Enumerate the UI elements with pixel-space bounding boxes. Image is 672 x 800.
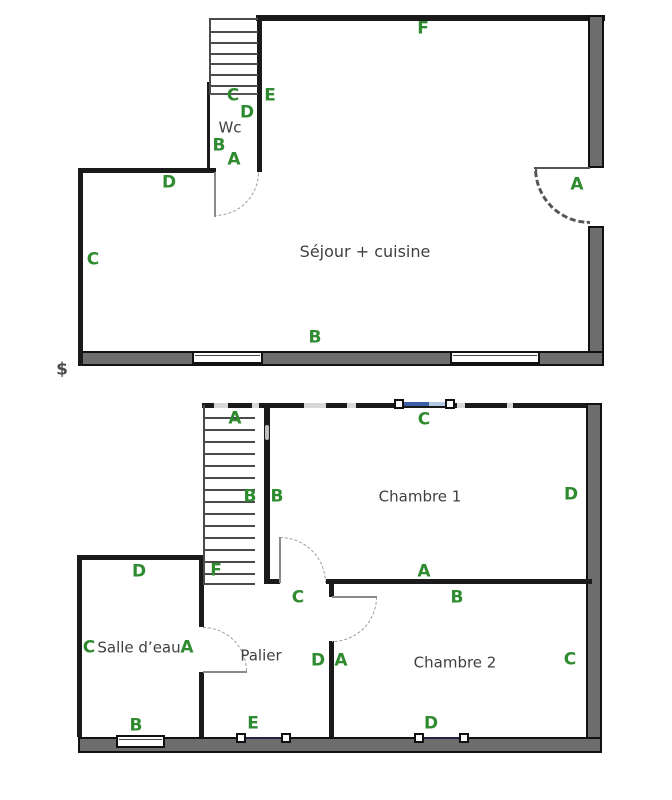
marker-b: B xyxy=(130,718,143,735)
stair-tread xyxy=(205,429,255,431)
roof-window-chambre2-end-square xyxy=(414,733,424,743)
chambre2-door-leaf xyxy=(332,596,377,598)
wall-salle-top-wall xyxy=(77,555,204,560)
chambre1-door-swing-arc xyxy=(280,537,326,583)
roof-window-top-end-square xyxy=(445,399,455,409)
wall-salle-right-wall-lower xyxy=(199,672,204,737)
roof-window-palier-end-square xyxy=(281,733,291,743)
stair-tread xyxy=(205,549,255,551)
wall-right-wall xyxy=(586,403,602,753)
marker-b: B xyxy=(271,489,284,506)
stair-tread xyxy=(205,513,255,515)
room-label-chambre-2: Chambre 2 xyxy=(414,656,497,671)
marker-a: A xyxy=(180,640,193,657)
window-glass-line xyxy=(119,739,162,740)
stair-tread xyxy=(205,525,255,527)
stair-tread xyxy=(205,477,255,479)
upper-floor-plan: ACBBDACBDFCADACBEDChambre 1Chambre 2Sall… xyxy=(0,0,672,800)
salle-deau-door-leaf xyxy=(203,671,247,673)
chambre1-door-leaf xyxy=(279,537,281,583)
marker-c: C xyxy=(564,652,576,669)
stair-tread xyxy=(205,453,255,455)
roof-window-palier-end-square xyxy=(236,733,246,743)
floorplan-canvas: FCEDBADACBWcSéjour + cuisine$ ACBBDACBDF… xyxy=(0,0,672,800)
salle-window-window xyxy=(116,735,165,748)
marker-a: A xyxy=(228,411,241,428)
wall-gap xyxy=(457,403,465,408)
marker-d: D xyxy=(132,564,146,581)
room-label-salle-deau: Salle d’eau xyxy=(97,641,180,656)
stair-tread xyxy=(205,537,255,539)
wall-gap xyxy=(347,403,356,408)
marker-b: B xyxy=(244,489,257,506)
marker-f: F xyxy=(210,563,222,580)
marker-d: D xyxy=(564,487,578,504)
room-label-palier: Palier xyxy=(240,649,281,664)
roof-window-chambre2-end-square xyxy=(459,733,469,743)
roof-window-top-bar xyxy=(429,402,446,406)
roof-window-top-end-square xyxy=(394,399,404,409)
wall-mark xyxy=(265,425,269,440)
chambre2-door-swing-arc xyxy=(332,597,377,642)
marker-d: D xyxy=(424,716,438,733)
room-label-chambre-1: Chambre 1 xyxy=(379,490,462,505)
marker-a: A xyxy=(334,653,347,670)
roof-window-top-bar xyxy=(403,402,429,406)
wall-gap xyxy=(304,403,326,408)
wall-gap xyxy=(507,403,513,408)
stair-tread xyxy=(205,465,255,467)
marker-c: C xyxy=(418,412,430,429)
wall-mid-wall-lower xyxy=(329,641,334,737)
roof-window-palier-bar xyxy=(245,737,282,739)
marker-c: C xyxy=(83,640,95,657)
marker-b: B xyxy=(451,590,464,607)
marker-c: C xyxy=(292,590,304,607)
marker-e: E xyxy=(247,716,259,733)
roof-window-chambre2-bar xyxy=(423,737,460,739)
stair-tread xyxy=(205,441,255,443)
wall-salle-left-wall xyxy=(77,555,82,737)
marker-a: A xyxy=(417,564,430,581)
marker-d: D xyxy=(311,653,325,670)
wall-ch1-bottom-wall-right xyxy=(326,579,592,584)
wall-ch1-bottom-wall-left xyxy=(264,579,280,584)
